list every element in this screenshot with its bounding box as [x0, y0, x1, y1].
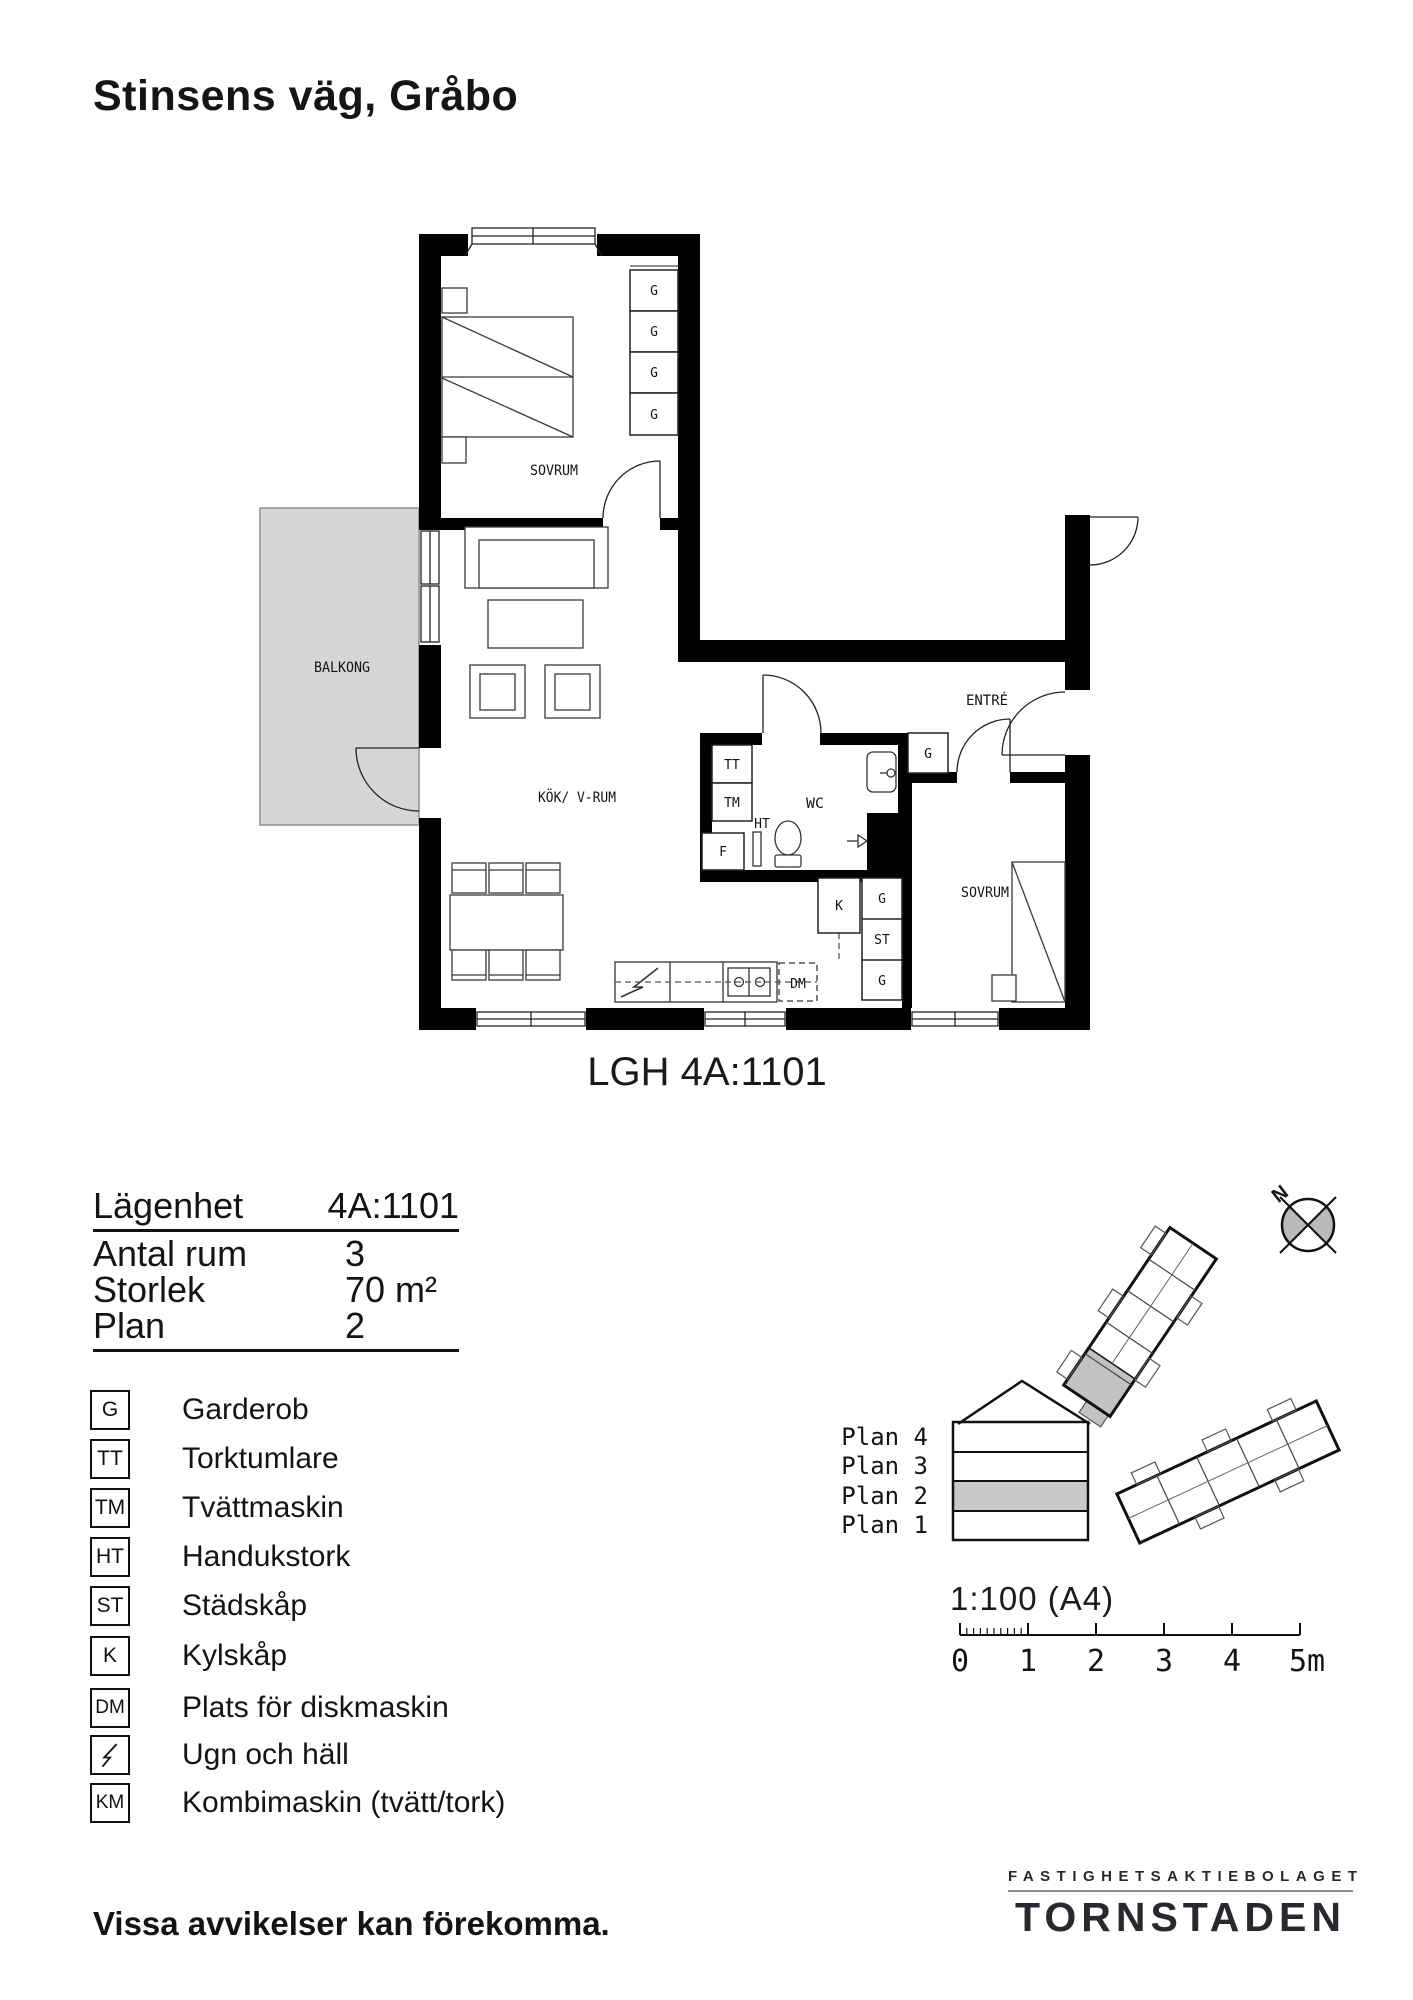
- legend-code-box: ST: [90, 1586, 130, 1626]
- toilet: [775, 821, 801, 855]
- level-label: Plan 2: [841, 1482, 928, 1510]
- brand-divider: [1008, 1890, 1353, 1892]
- legend-code-box: DM: [90, 1688, 130, 1728]
- room-label-wc: WC: [806, 796, 824, 812]
- legend-item: DM Plats för diskmaskin: [90, 1688, 449, 1728]
- vent-arrow-icon: [847, 835, 867, 847]
- brand-name: TORNSTADEN: [1008, 1894, 1353, 1941]
- floor-plan: BALKONG: [250, 225, 1150, 1040]
- legend-item-label: Städskåp: [182, 1589, 307, 1623]
- info-label: Plan: [93, 1308, 345, 1344]
- legend-item: G Garderob: [90, 1390, 309, 1430]
- level-label: Plan 4: [841, 1423, 928, 1451]
- legend-code-box: TT: [90, 1439, 130, 1479]
- marker-g: G: [650, 284, 658, 299]
- apartment-caption: LGH 4A:1101: [482, 1050, 932, 1095]
- scale-bar: 0 1 2 3 4 5m: [940, 1615, 1340, 1685]
- legend-code-box: HT: [90, 1537, 130, 1577]
- scale-tick-label: 0: [951, 1644, 969, 1679]
- site-building-2: [1111, 1389, 1344, 1554]
- room-label-balcony: BALKONG: [314, 660, 370, 676]
- legend-code-box: [90, 1735, 130, 1775]
- marker-tt: TT: [724, 758, 740, 773]
- legend-item-label: Tvättmaskin: [182, 1491, 344, 1525]
- legend-item: KM Kombimaskin (tvätt/tork): [90, 1783, 505, 1823]
- marker-tm: TM: [724, 796, 740, 811]
- lightning-icon: [95, 1740, 125, 1770]
- level-label: Plan 1: [841, 1511, 928, 1539]
- info-value: 4A:1101: [328, 1188, 459, 1224]
- info-value: 2: [345, 1308, 365, 1344]
- level-indicator: Plan 4 Plan 3 Plan 2 Plan 1: [830, 1360, 1120, 1560]
- marker-g: G: [650, 366, 658, 381]
- marker-f: F: [719, 845, 727, 860]
- balcony: BALKONG: [260, 508, 419, 825]
- scale-tick-label: 5m: [1289, 1644, 1325, 1679]
- scale-tick-label: 4: [1223, 1644, 1241, 1679]
- marker-g: G: [650, 408, 658, 423]
- marker-k: K: [835, 899, 843, 914]
- apartment-info-table: Lägenhet 4A:1101 Antal rum 3 Storlek 70 …: [93, 1188, 459, 1356]
- marker-dm: DM: [790, 977, 806, 992]
- info-label: Storlek: [93, 1272, 345, 1308]
- marker-st: ST: [874, 933, 890, 948]
- scale-tick-label: 3: [1155, 1644, 1173, 1679]
- legend-item-label: Kylskåp: [182, 1639, 287, 1673]
- info-label: Antal rum: [93, 1236, 345, 1272]
- disclaimer-text: Vissa avvikelser kan förekomma.: [93, 1905, 610, 1943]
- legend-item-label: Ugn och häll: [182, 1738, 349, 1772]
- legend-item-label: Kombimaskin (tvätt/tork): [182, 1786, 505, 1820]
- compass-north-label: N: [1268, 1181, 1293, 1207]
- legend-item-label: Garderob: [182, 1393, 309, 1427]
- towel-radiator: [753, 832, 761, 866]
- legend-code-box: K: [90, 1636, 130, 1676]
- room-label-bedroom2: SOVRUM: [961, 885, 1009, 901]
- scale-tick-label: 2: [1087, 1644, 1105, 1679]
- table-row: Lägenhet 4A:1101: [93, 1188, 459, 1224]
- legend-item-label: Handukstork: [182, 1540, 350, 1574]
- legend-code-box: TM: [90, 1488, 130, 1528]
- floorplan-sheet: Stinsens väg, Gråbo BALKONG: [0, 0, 1413, 2000]
- scale-ratio: 1:100 (A4): [950, 1580, 1114, 1618]
- info-value: 3: [345, 1236, 365, 1272]
- brand-logo: FASTIGHETSAKTIEBOLAGET TORNSTADEN: [1008, 1868, 1353, 1941]
- legend-item: Ugn och häll: [90, 1735, 349, 1775]
- legend-item-label: Torktumlare: [182, 1442, 339, 1476]
- legend-item: TM Tvättmaskin: [90, 1488, 344, 1528]
- legend-item: HT Handukstork: [90, 1537, 350, 1577]
- legend-item: TT Torktumlare: [90, 1439, 339, 1479]
- marker-g: G: [878, 974, 886, 989]
- level-label: Plan 3: [841, 1452, 928, 1480]
- table-row: Antal rum 3: [93, 1236, 459, 1272]
- table-row: Storlek 70 m²: [93, 1272, 459, 1308]
- compass-icon: N: [1268, 1181, 1336, 1253]
- roof: [958, 1381, 1090, 1424]
- closets: [630, 266, 948, 1000]
- page-title: Stinsens väg, Gråbo: [93, 72, 518, 121]
- info-value: 70 m²: [345, 1272, 437, 1308]
- table-row: Plan 2: [93, 1308, 459, 1344]
- divider: [93, 1349, 459, 1352]
- marker-g: G: [650, 325, 658, 340]
- info-label: Lägenhet: [93, 1188, 328, 1224]
- legend-item: K Kylskåp: [90, 1636, 287, 1676]
- legend-item: ST Städskåp: [90, 1586, 307, 1626]
- divider: [93, 1229, 459, 1232]
- scale-tick-label: 1: [1019, 1644, 1037, 1679]
- room-label-kitchen: KÖK/ V-RUM: [538, 788, 616, 806]
- legend-code-box: G: [90, 1390, 130, 1430]
- brand-overline: FASTIGHETSAKTIEBOLAGET: [1008, 1868, 1353, 1885]
- active-level-fill: [953, 1481, 1088, 1511]
- legend-code-box: KM: [90, 1783, 130, 1823]
- marker-g: G: [924, 747, 932, 762]
- room-label-entry: ENTRÉ: [966, 692, 1008, 709]
- legend-item-label: Plats för diskmaskin: [182, 1691, 449, 1725]
- sink: [867, 752, 896, 792]
- room-label-bedroom1: SOVRUM: [530, 463, 578, 479]
- marker-ht: HT: [754, 817, 770, 832]
- marker-g: G: [878, 892, 886, 907]
